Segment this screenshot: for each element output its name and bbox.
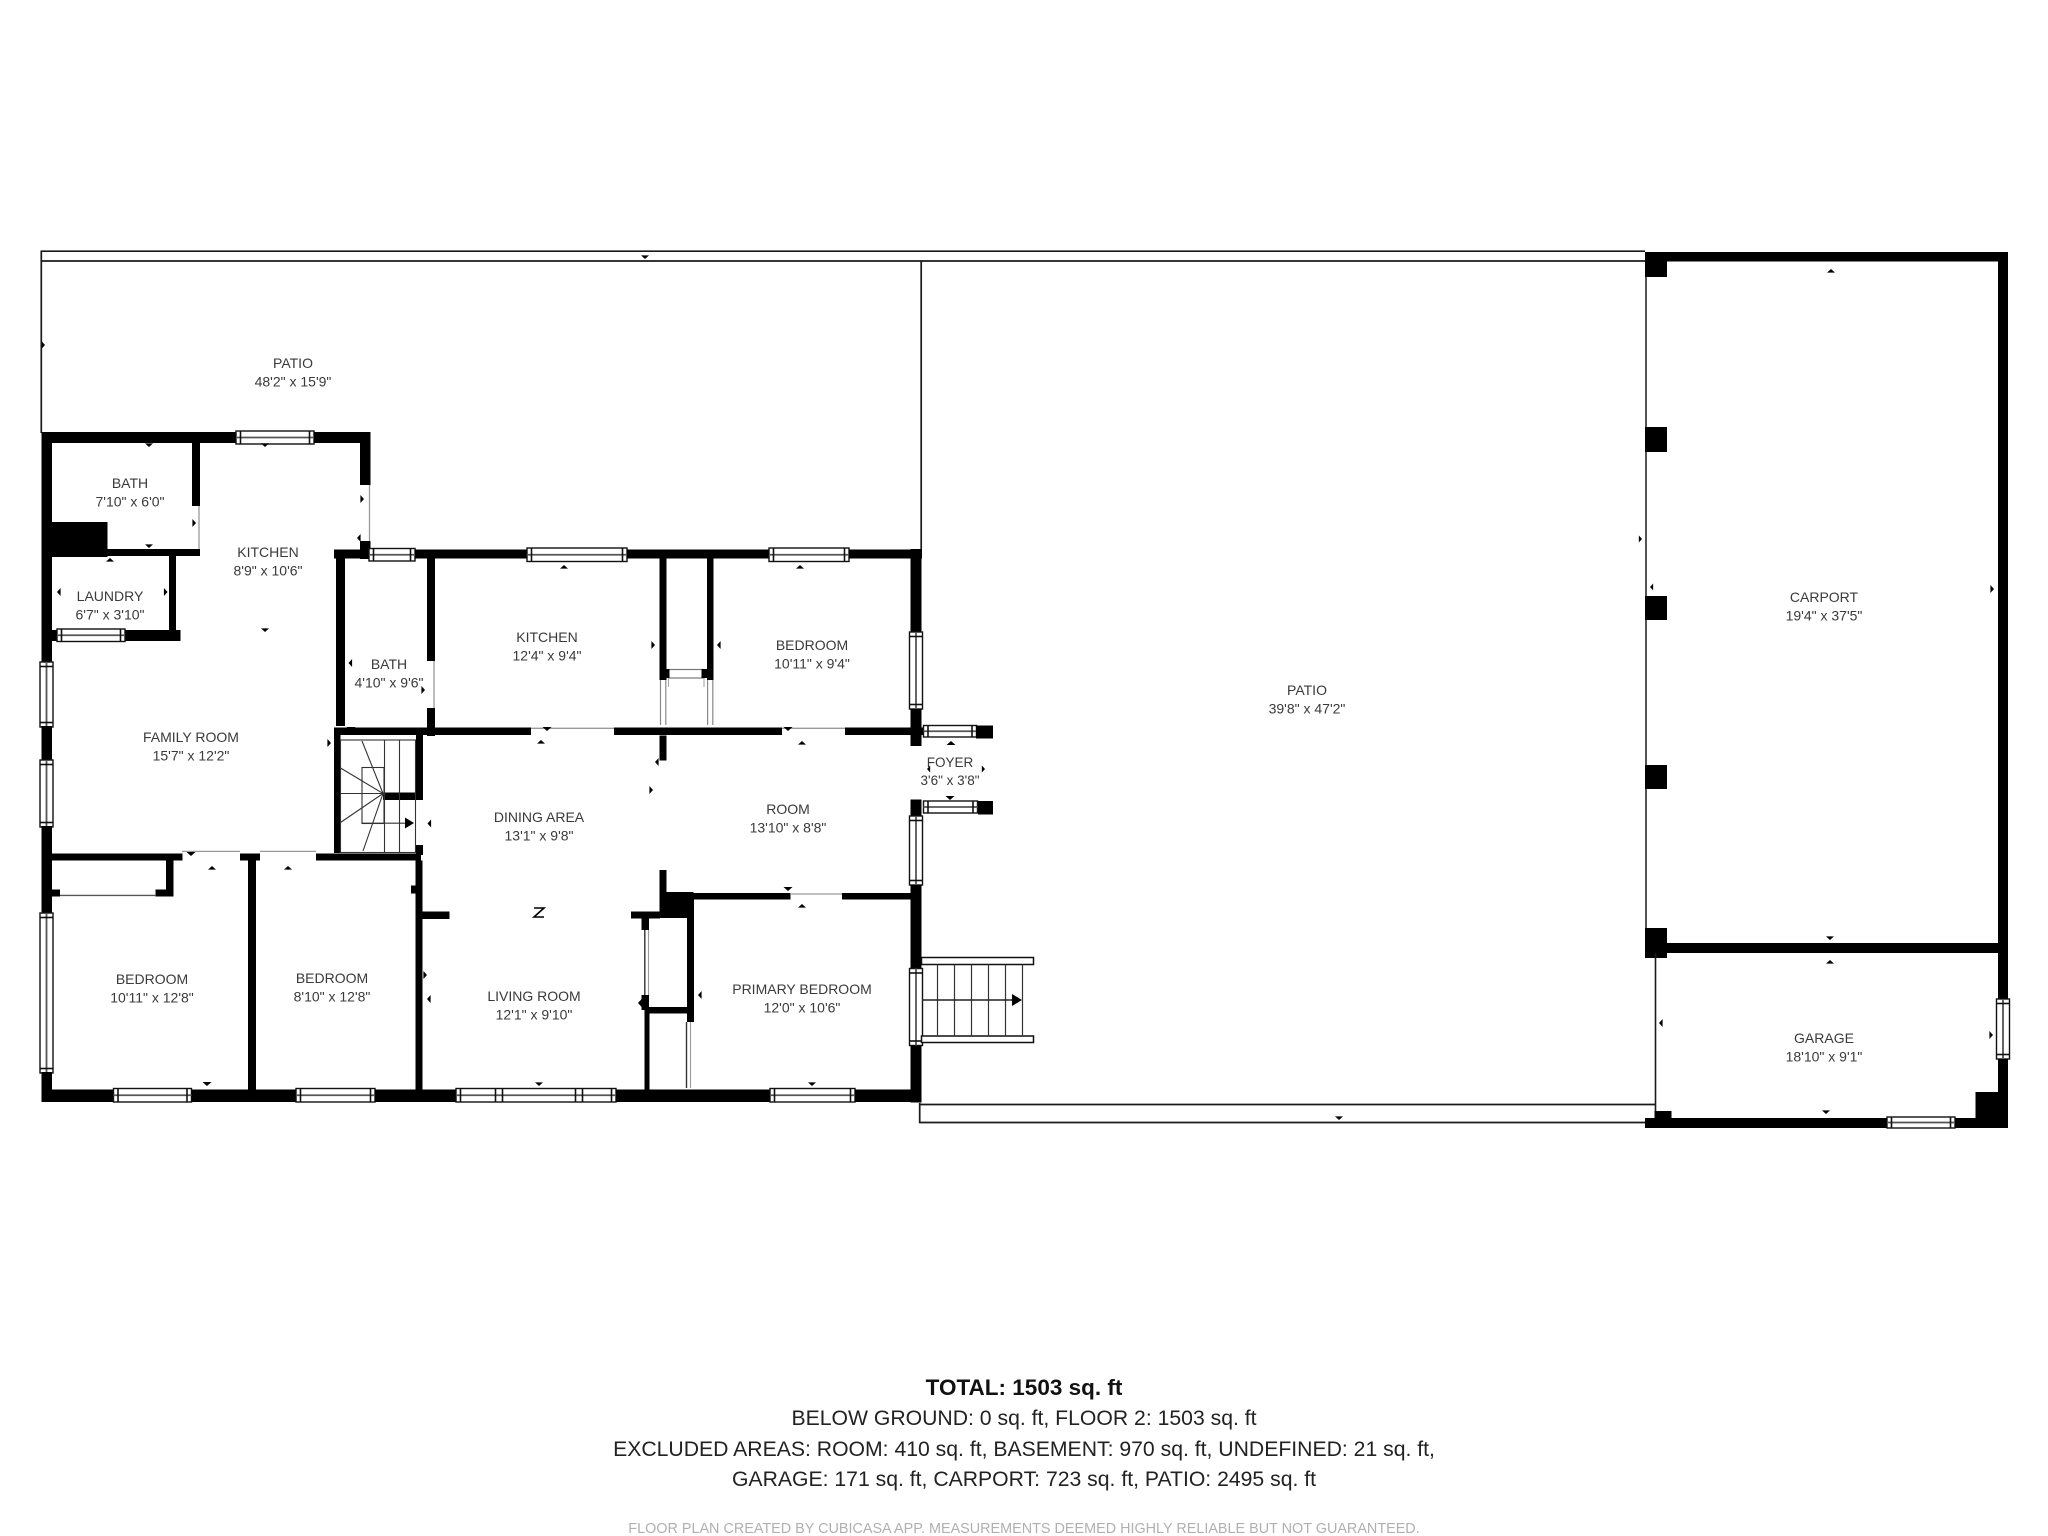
svg-text:KITCHEN: KITCHEN xyxy=(516,629,577,645)
svg-text:15'7" x 12'2": 15'7" x 12'2" xyxy=(153,748,230,764)
svg-text:CARPORT: CARPORT xyxy=(1790,589,1859,605)
svg-text:BEDROOM: BEDROOM xyxy=(296,970,368,986)
svg-text:EXCLUDED AREAS: ROOM: 410 sq.: EXCLUDED AREAS: ROOM: 410 sq. ft, BASEME… xyxy=(613,1438,1435,1461)
svg-text:PRIMARY BEDROOM: PRIMARY BEDROOM xyxy=(732,981,872,997)
svg-text:LIVING ROOM: LIVING ROOM xyxy=(487,988,580,1004)
svg-text:39'8" x 47'2": 39'8" x 47'2" xyxy=(1269,701,1346,717)
svg-text:FOYER: FOYER xyxy=(927,755,974,770)
svg-text:48'2" x 15'9": 48'2" x 15'9" xyxy=(255,374,332,390)
svg-text:6'7" x 3'10": 6'7" x 3'10" xyxy=(76,607,145,623)
svg-text:19'4" x 37'5": 19'4" x 37'5" xyxy=(1786,608,1863,624)
svg-text:8'9" x 10'6": 8'9" x 10'6" xyxy=(234,563,303,579)
svg-text:BEDROOM: BEDROOM xyxy=(776,637,848,653)
svg-text:10'11" x 9'4": 10'11" x 9'4" xyxy=(774,656,850,672)
svg-text:7'10" x 6'0": 7'10" x 6'0" xyxy=(96,494,165,510)
svg-text:8'10" x 12'8": 8'10" x 12'8" xyxy=(294,989,371,1005)
svg-text:FAMILY ROOM: FAMILY ROOM xyxy=(143,729,239,745)
svg-text:FLOOR PLAN CREATED BY CUBICASA: FLOOR PLAN CREATED BY CUBICASA APP. MEAS… xyxy=(628,1521,1419,1536)
svg-text:3'6" x 3'8": 3'6" x 3'8" xyxy=(920,773,979,788)
svg-text:BEDROOM: BEDROOM xyxy=(116,971,188,987)
svg-text:GARAGE: GARAGE xyxy=(1794,1030,1854,1046)
svg-text:12'4" x 9'4": 12'4" x 9'4" xyxy=(513,648,582,664)
svg-text:KITCHEN: KITCHEN xyxy=(237,544,298,560)
svg-text:12'0" x 10'6": 12'0" x 10'6" xyxy=(764,1000,841,1016)
svg-text:LAUNDRY: LAUNDRY xyxy=(77,588,144,604)
svg-text:10'11" x 12'8": 10'11" x 12'8" xyxy=(110,990,194,1006)
svg-text:BATH: BATH xyxy=(371,656,407,672)
svg-text:PATIO: PATIO xyxy=(273,355,313,371)
svg-text:PATIO: PATIO xyxy=(1287,682,1327,698)
svg-text:13'1" x 9'8": 13'1" x 9'8" xyxy=(505,828,574,844)
svg-text:13'10" x 8'8": 13'10" x 8'8" xyxy=(750,820,827,836)
svg-text:TOTAL: 1503 sq. ft: TOTAL: 1503 sq. ft xyxy=(926,1375,1123,1400)
svg-text:BATH: BATH xyxy=(112,475,148,491)
svg-text:GARAGE: 171 sq. ft, CARPORT: 7: GARAGE: 171 sq. ft, CARPORT: 723 sq. ft,… xyxy=(732,1468,1316,1491)
svg-text:4'10" x 9'6": 4'10" x 9'6" xyxy=(355,675,424,691)
svg-text:DINING AREA: DINING AREA xyxy=(494,809,585,825)
svg-text:18'10" x 9'1": 18'10" x 9'1" xyxy=(1786,1049,1863,1065)
svg-text:BELOW GROUND: 0 sq. ft, FLOOR: BELOW GROUND: 0 sq. ft, FLOOR 2: 1503 sq… xyxy=(791,1407,1256,1430)
svg-text:ROOM: ROOM xyxy=(766,801,810,817)
svg-text:12'1" x 9'10": 12'1" x 9'10" xyxy=(496,1007,573,1023)
